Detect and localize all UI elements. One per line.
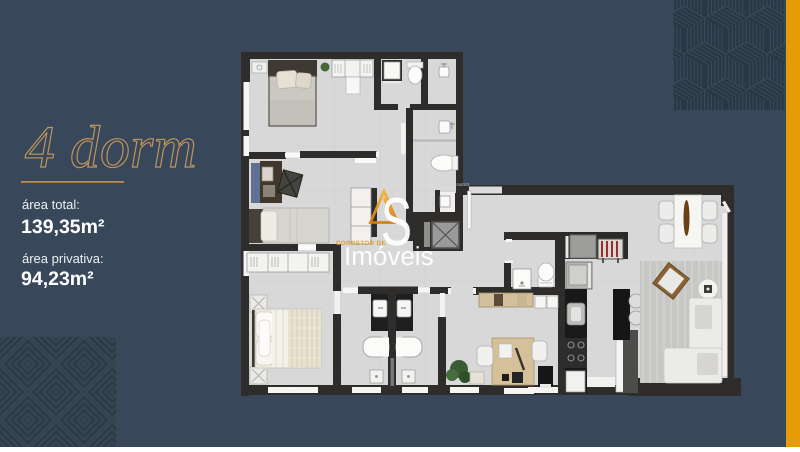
- svg-text:Imóveis: Imóveis: [344, 241, 434, 271]
- svg-text:139,35m²: 139,35m²: [21, 216, 105, 238]
- svg-text:CRECI 040321: CRECI 040321: [443, 182, 471, 187]
- svg-text:área total:: área total:: [22, 197, 80, 212]
- svg-text:94,23m²: 94,23m²: [21, 268, 94, 290]
- svg-text:área privativa:: área privativa:: [22, 251, 104, 266]
- svg-text:4 dorm: 4 dorm: [25, 114, 197, 180]
